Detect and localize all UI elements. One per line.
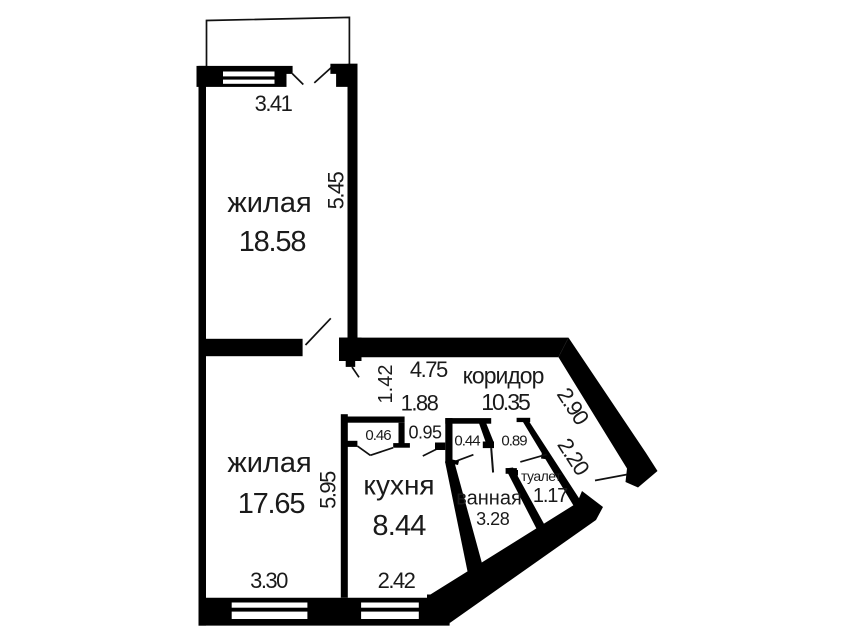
svg-text:0.44: 0.44 bbox=[454, 432, 480, 449]
svg-text:2.42: 2.42 bbox=[378, 568, 416, 593]
svg-text:1.42: 1.42 bbox=[375, 365, 397, 404]
svg-text:17.65: 17.65 bbox=[238, 488, 305, 520]
svg-text:жилая: жилая bbox=[227, 447, 311, 479]
svg-text:0.89: 0.89 bbox=[501, 432, 527, 449]
svg-text:жилая: жилая bbox=[227, 187, 311, 219]
svg-text:10.35: 10.35 bbox=[481, 389, 530, 415]
svg-text:коридор: коридор bbox=[463, 363, 544, 389]
svg-text:3.30: 3.30 bbox=[250, 568, 288, 593]
svg-text:1.88: 1.88 bbox=[401, 391, 439, 416]
svg-text:кухня: кухня bbox=[363, 469, 434, 500]
svg-text:туалет: туалет bbox=[521, 468, 562, 484]
svg-text:4.75: 4.75 bbox=[410, 357, 448, 382]
svg-text:18.58: 18.58 bbox=[239, 226, 306, 258]
svg-text:8.44: 8.44 bbox=[372, 510, 426, 542]
svg-text:1.17: 1.17 bbox=[533, 485, 568, 507]
svg-text:ванная: ванная bbox=[456, 487, 522, 509]
svg-text:5.95: 5.95 bbox=[316, 471, 341, 509]
svg-text:5.45: 5.45 bbox=[324, 171, 349, 209]
svg-text:3.28: 3.28 bbox=[476, 509, 510, 529]
svg-text:3.41: 3.41 bbox=[255, 91, 293, 116]
svg-text:0.46: 0.46 bbox=[365, 427, 391, 444]
svg-text:0.95: 0.95 bbox=[408, 423, 442, 443]
